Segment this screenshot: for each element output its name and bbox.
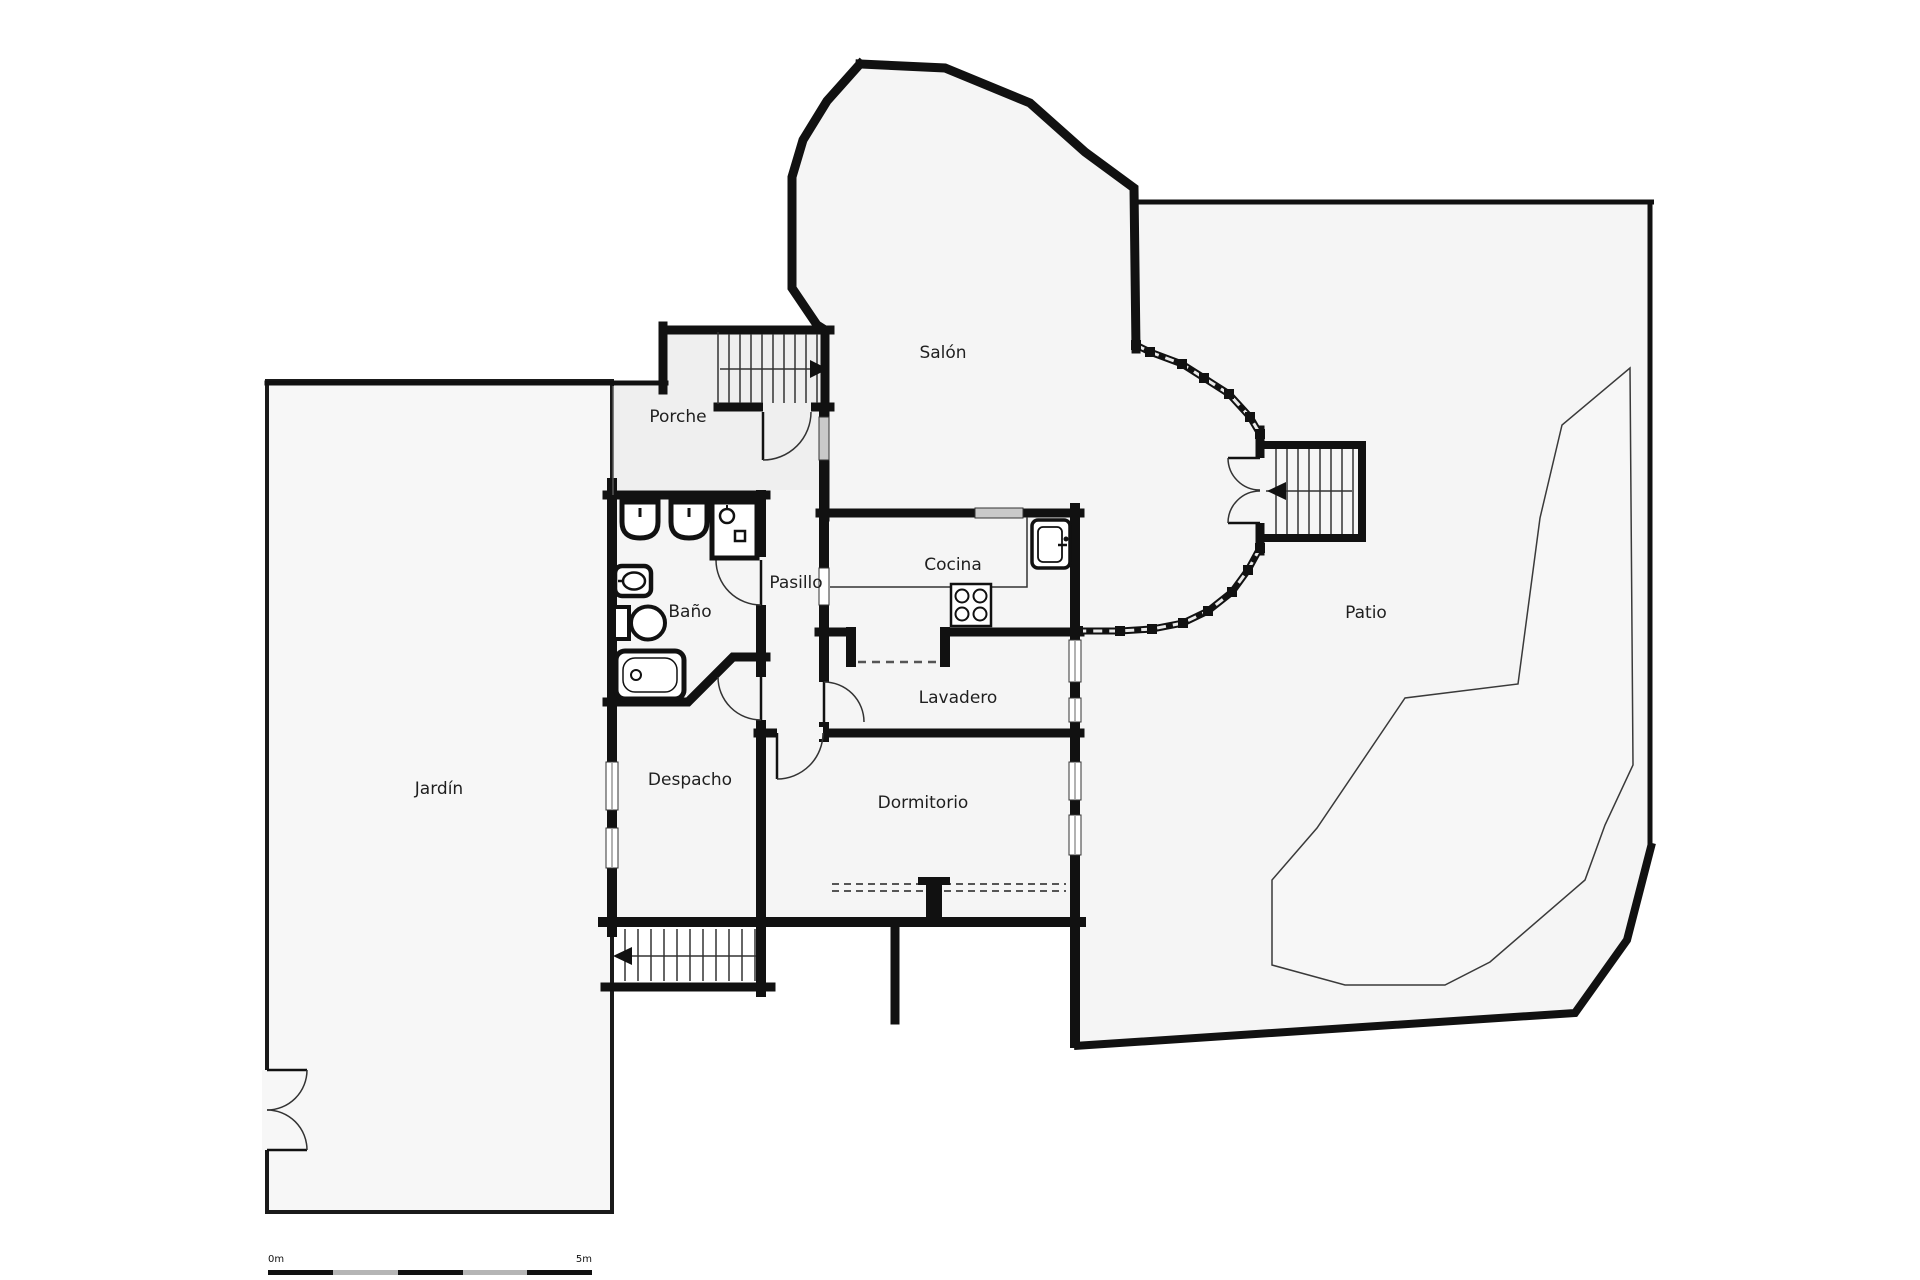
room-label-lavadero: Lavadero: [919, 688, 998, 708]
kitchen-window: [975, 508, 1023, 518]
area-fills: [267, 64, 1652, 1212]
stove-icon: [951, 584, 991, 626]
room-label-salon: Salón: [919, 343, 966, 363]
wardrobe-divider: [926, 880, 942, 922]
stairs-down-arrow: [613, 947, 632, 965]
room-label-dormitorio: Dormitorio: [878, 793, 969, 813]
floor-plan-canvas: Salón Porche Pasillo Cocina Baño Lavader…: [0, 0, 1920, 1280]
shower-icon: [712, 502, 757, 558]
south-stairs: [613, 929, 756, 981]
floor-plan: Salón Porche Pasillo Cocina Baño Lavader…: [0, 0, 1920, 1280]
porch-salon-window: [819, 417, 829, 460]
room-label-jardin: Jardín: [414, 779, 463, 799]
room-label-pasillo: Pasillo: [769, 573, 822, 593]
scale-bar: 0m 5m: [268, 1254, 592, 1275]
porch-area: [613, 332, 830, 497]
sink-icon: [615, 566, 651, 596]
kitchen-sink-icon: [1032, 520, 1070, 568]
building-area: [607, 490, 1081, 927]
toilet-icon: [614, 607, 665, 640]
scale-end-label: 5m: [576, 1254, 592, 1265]
room-label-bano: Baño: [668, 602, 711, 622]
room-label-cocina: Cocina: [924, 555, 982, 575]
washbasin-icon: [671, 502, 707, 538]
room-label-despacho: Despacho: [648, 770, 732, 790]
scale-start-label: 0m: [268, 1254, 284, 1265]
room-label-porche: Porche: [649, 407, 706, 427]
wardrobe-divider-cap: [918, 877, 950, 885]
washbasin-icon: [622, 502, 658, 538]
room-label-patio: Patio: [1345, 603, 1387, 623]
bathtub-icon: [616, 651, 684, 699]
